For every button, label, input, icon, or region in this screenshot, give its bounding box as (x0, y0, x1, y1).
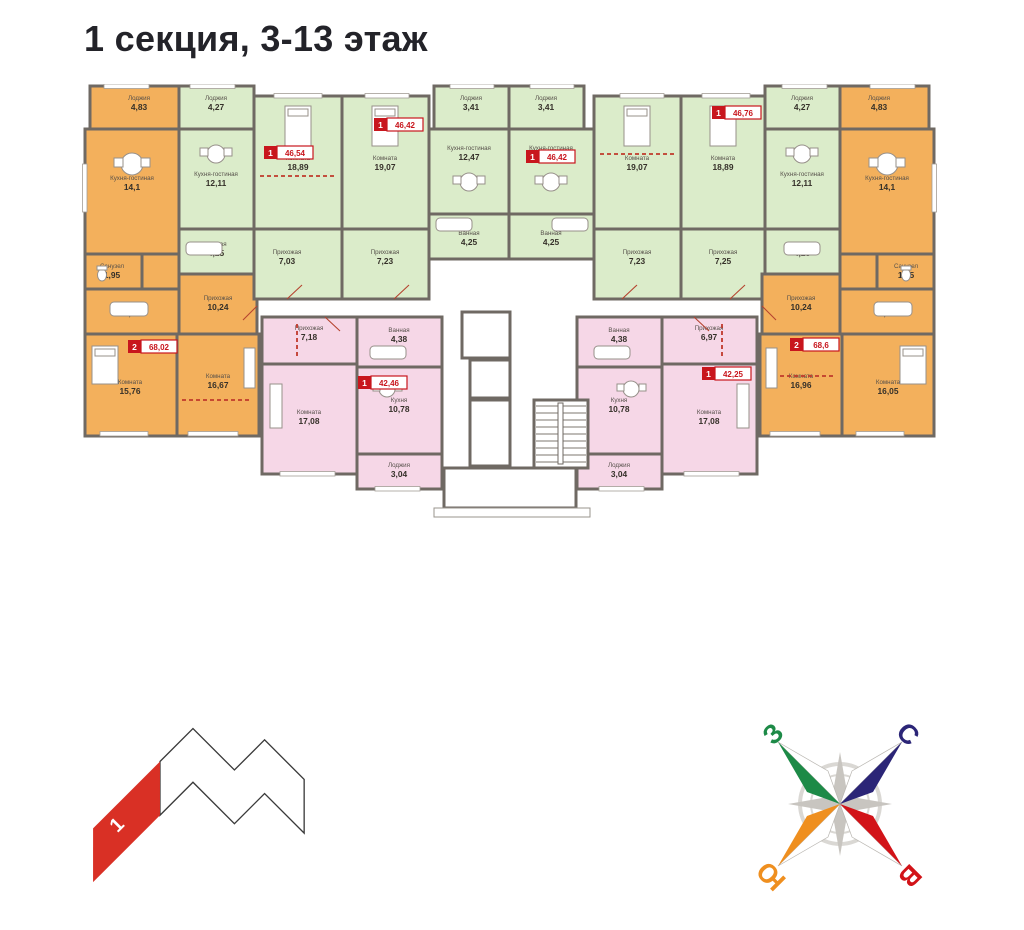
badge-area-value: 68,02 (149, 343, 170, 352)
room-label: Лоджия (460, 95, 482, 102)
room-hall-31: Прихожая10,24 (762, 274, 840, 339)
badge-area-value: 42,25 (723, 370, 744, 379)
compass-rose: З С Ю В (743, 704, 938, 904)
room-label: Кухня-гостиная (865, 175, 909, 182)
room-label: Лоджия (535, 95, 557, 102)
room-kitchen-living-18: Кухня-гостиная12,47 (509, 129, 594, 214)
room-label: Комната (876, 379, 901, 386)
apartment-area-badge: 268,02 (128, 340, 177, 353)
room-area: 17,08 (699, 416, 720, 426)
badge-room-count: 1 (378, 120, 383, 130)
badge-room-count: 1 (716, 108, 721, 118)
apartment-area-badge: 146,76 (712, 106, 761, 119)
room-area: 10,24 (208, 302, 229, 312)
room-area: 19,07 (627, 162, 648, 172)
room-area: 7,23 (629, 256, 646, 266)
room-label: Прихожая (371, 249, 400, 256)
room-area: 15,76 (120, 386, 141, 396)
room-loggia-0: Лоджия4,83 (90, 86, 179, 129)
room-kitchen-living-28: Кухня-гостиная14,1 (840, 129, 934, 254)
room-label: Прихожая (204, 295, 233, 302)
room-area: 10,78 (609, 404, 630, 414)
badge-room-count: 1 (706, 369, 711, 379)
room-area: 18,89 (288, 162, 309, 172)
compass-point-northwest (778, 742, 840, 804)
room-hall-4: Прихожая10,24 (179, 274, 257, 339)
badge-area-value: 46,42 (395, 121, 416, 130)
badge-area-value: 46,42 (547, 153, 568, 162)
room-label: Прихожая (295, 325, 324, 332)
room-area: 19,07 (375, 162, 396, 172)
building-minimap: 1 (78, 720, 323, 885)
room-kitchen-41: Кухня10,78 (577, 367, 662, 454)
room-area: 17,08 (299, 416, 320, 426)
room-area: 4,38 (611, 334, 628, 344)
entrance-vestibule (434, 468, 590, 517)
room-area: 4,25 (461, 237, 478, 247)
room-label: Лоджия (128, 95, 150, 102)
room-hall-40: Прихожая6,97 (662, 317, 757, 364)
badge-area-value: 68,6 (813, 341, 829, 350)
room-wc-2: Санузел1,95 (85, 254, 142, 289)
room-loggia-15: Лоджия3,41 (434, 86, 509, 129)
room-label: Лоджия (205, 95, 227, 102)
badge-room-count: 2 (132, 342, 137, 352)
room-area: 4,83 (871, 102, 888, 112)
badge-area-value: 42,46 (379, 379, 400, 388)
room-label: Комната (297, 409, 322, 416)
room-area: 3,04 (391, 469, 408, 479)
room-area: 16,67 (208, 380, 229, 390)
room-loggia-27: Лоджия4,83 (840, 86, 929, 129)
compass-point-southwest (778, 804, 840, 866)
room-label: Лоджия (388, 462, 410, 469)
room-area: 7,23 (377, 256, 394, 266)
other-sections-outline (160, 729, 304, 834)
room-kitchen-living-14: Кухня-гостиная12,47 (429, 129, 509, 214)
room-kitchen-living-8: Кухня-гостиная12,11 (179, 129, 254, 229)
room-area: 10,78 (389, 404, 410, 414)
room-loggia-43: Лоджия3,04 (577, 454, 662, 489)
apartment-area-badge: 146,54 (264, 146, 313, 159)
room-hall-13: Прихожая7,23 (342, 229, 429, 299)
room-label: Комната (118, 379, 143, 386)
hall-filler (840, 254, 877, 289)
badge-area-value: 46,54 (285, 149, 306, 158)
section-1-highlight (93, 762, 160, 883)
badge-room-count: 2 (794, 340, 799, 350)
room-area: 10,24 (791, 302, 812, 312)
room-label: Прихожая (787, 295, 816, 302)
room-label: Комната (373, 155, 398, 162)
badge-room-count: 1 (362, 378, 367, 388)
room-label: Кухня (611, 397, 628, 404)
room-area: 12,47 (459, 152, 480, 162)
room-label: Лоджия (791, 95, 813, 102)
room-hall-23: Прихожая7,25 (681, 229, 765, 299)
room-label: Кухня-гостиная (194, 171, 238, 178)
room-area: 6,97 (701, 332, 718, 342)
room-label: Прихожая (709, 249, 738, 256)
apartment-area-badge: 146,42 (374, 118, 423, 131)
room-label: Прихожая (623, 249, 652, 256)
room-label: Кухня-гостиная (447, 145, 491, 152)
room-loggia-38: Лоджия3,04 (357, 454, 442, 489)
room-label: Комната (697, 409, 722, 416)
room-label: Комната (625, 155, 650, 162)
room-area: 12,11 (206, 178, 227, 188)
room-area: 4,27 (794, 102, 811, 112)
room-area: 4,38 (391, 334, 408, 344)
room-area: 4,83 (131, 102, 148, 112)
room-hall-21: Прихожая7,23 (594, 229, 681, 299)
room-label: Комната (711, 155, 736, 162)
room-loggia-7: Лоджия4,27 (179, 86, 254, 129)
room-area: 7,03 (279, 256, 296, 266)
apartment-area-badge: 142,46 (358, 376, 407, 389)
room-area: 18,89 (713, 162, 734, 172)
room-area: 7,25 (715, 256, 732, 266)
room-label: Ванная (388, 327, 409, 334)
room-kitchen-living-1: Кухня-гостиная14,1 (85, 129, 179, 254)
badge-area-value: 46,76 (733, 109, 754, 118)
room-label: Прихожая (273, 249, 302, 256)
room-label: Кухня-гостиная (110, 175, 154, 182)
room-hall-34: Прихожая7,18 (262, 317, 357, 364)
room-label: Комната (206, 373, 231, 380)
room-area: 14,1 (124, 182, 141, 192)
apartment-area-badge: 268,6 (790, 338, 839, 351)
room-area: 4,25 (543, 237, 560, 247)
room-label: Кухня-гостиная (780, 171, 824, 178)
room-label: Лоджия (868, 95, 890, 102)
apartment-area-badge: 146,42 (526, 150, 575, 163)
floor-plan: Лоджия4,83Кухня-гостиная14,1Санузел1,95В… (82, 84, 942, 524)
compass-point-southeast (840, 804, 902, 866)
badge-room-count: 1 (530, 152, 535, 162)
room-area: 16,05 (878, 386, 899, 396)
room-area: 3,04 (611, 469, 628, 479)
room-area: 3,41 (538, 102, 555, 112)
page-title: 1 секция, 3-13 этаж (84, 18, 428, 60)
room-label: Ванная (608, 327, 629, 334)
apartment-area-badge: 142,25 (702, 367, 751, 380)
room-area: 16,96 (791, 380, 812, 390)
room-area: 7,18 (301, 332, 318, 342)
room-loggia-25: Лоджия4,27 (765, 86, 840, 129)
room-area: 4,27 (208, 102, 225, 112)
hall-filler (142, 254, 179, 289)
room-kitchen-living-24: Кухня-гостиная12,11 (765, 129, 840, 229)
elevator-shafts (462, 312, 510, 466)
room-label: Лоджия (608, 462, 630, 469)
room-loggia-17: Лоджия3,41 (509, 86, 584, 129)
room-label: Кухня (391, 397, 408, 404)
compass-point-northeast (840, 742, 902, 804)
room-area: 3,41 (463, 102, 480, 112)
room-area: 14,1 (879, 182, 896, 192)
badge-room-count: 1 (268, 148, 273, 158)
room-area: 12,11 (792, 178, 813, 188)
staircase (534, 400, 588, 468)
